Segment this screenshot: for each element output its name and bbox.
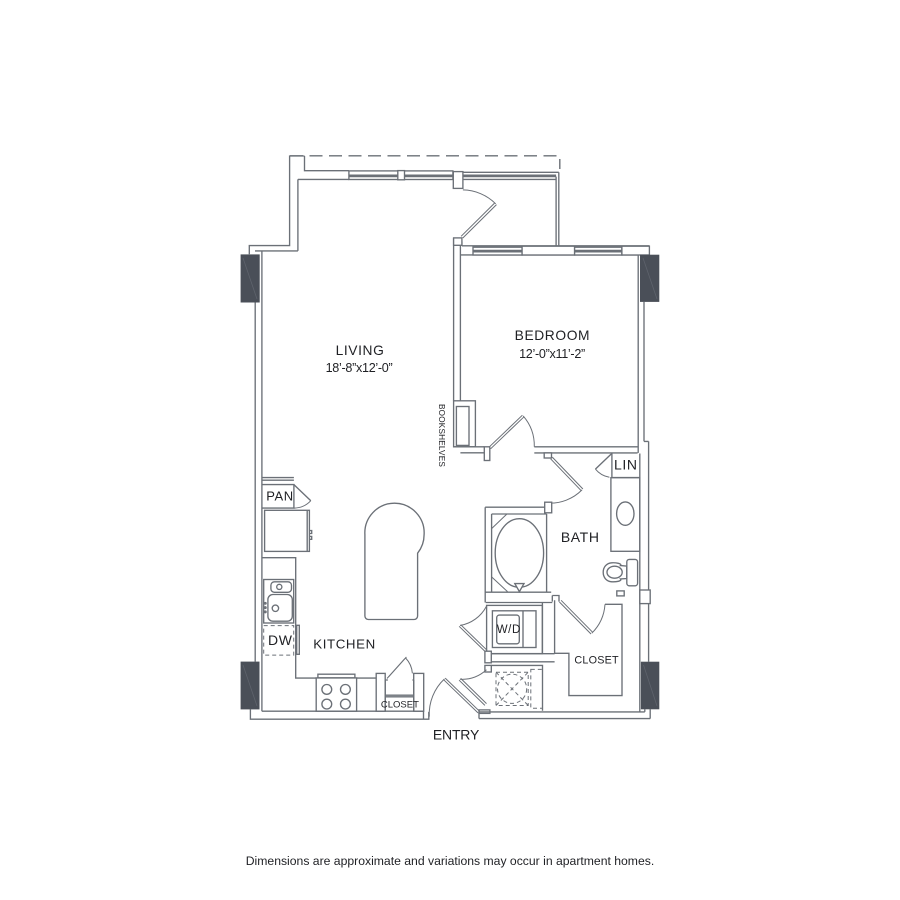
svg-text:CLOSET: CLOSET bbox=[574, 655, 619, 667]
svg-text:BEDROOM: BEDROOM bbox=[515, 328, 591, 343]
svg-text:W/D: W/D bbox=[497, 624, 521, 636]
svg-text:12’-0”x11’-2”: 12’-0”x11’-2” bbox=[519, 347, 585, 361]
svg-text:LIVING: LIVING bbox=[336, 343, 385, 358]
svg-text:PAN: PAN bbox=[266, 489, 294, 504]
svg-text:BATH: BATH bbox=[561, 529, 600, 545]
svg-text:ENTRY: ENTRY bbox=[433, 727, 480, 743]
svg-text:DW: DW bbox=[268, 632, 293, 648]
svg-text:18’-8”x12’-0”: 18’-8”x12’-0” bbox=[326, 361, 393, 375]
svg-text:LIN: LIN bbox=[614, 457, 638, 473]
svg-text:Dimensions are approximate and: Dimensions are approximate and variation… bbox=[246, 854, 654, 868]
svg-text:CLOSET: CLOSET bbox=[381, 700, 419, 711]
svg-text:KITCHEN: KITCHEN bbox=[313, 637, 376, 652]
svg-text:BOOKSHELVES: BOOKSHELVES bbox=[437, 404, 446, 467]
